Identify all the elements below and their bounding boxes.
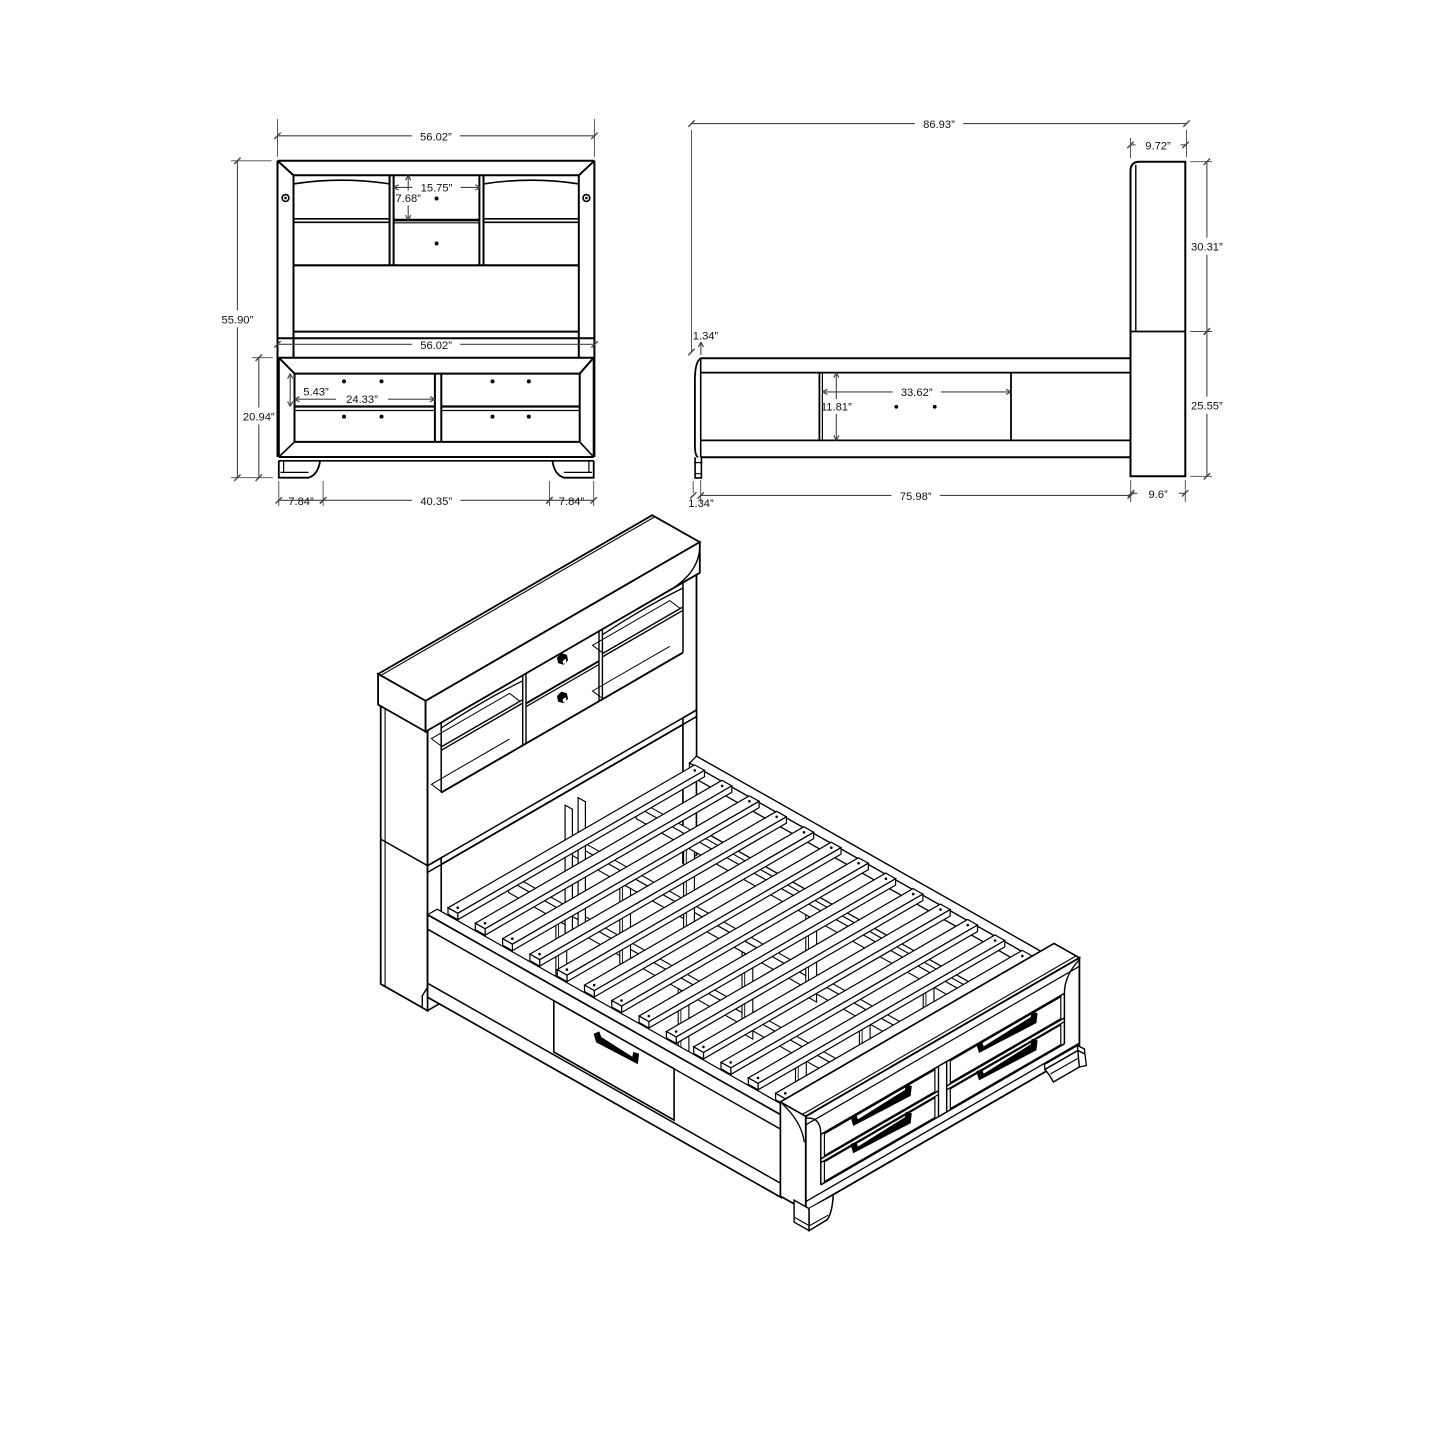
svg-text:24.33”: 24.33” xyxy=(346,394,378,406)
svg-text:20.94”: 20.94” xyxy=(243,412,275,424)
svg-text:7.68”: 7.68” xyxy=(395,193,421,205)
svg-text:9.72”: 9.72” xyxy=(1145,140,1171,152)
svg-text:15.75”: 15.75” xyxy=(421,182,453,194)
svg-text:55.90”: 55.90” xyxy=(222,314,254,326)
svg-text:86.93”: 86.93” xyxy=(923,119,955,131)
svg-text:40.35”: 40.35” xyxy=(420,496,452,508)
svg-text:33.62”: 33.62” xyxy=(901,387,933,399)
svg-text:7.84”: 7.84” xyxy=(559,496,585,508)
svg-text:30.31”: 30.31” xyxy=(1191,242,1223,254)
svg-text:25.55”: 25.55” xyxy=(1191,401,1223,413)
svg-text:1.34”: 1.34” xyxy=(693,331,719,343)
svg-text:11.81”: 11.81” xyxy=(821,402,852,414)
svg-text:7.84”: 7.84” xyxy=(288,496,314,508)
svg-text:9.6”: 9.6” xyxy=(1148,489,1168,501)
svg-text:5.43”: 5.43” xyxy=(303,387,329,399)
svg-text:56.02”: 56.02” xyxy=(420,340,452,352)
svg-text:75.98”: 75.98” xyxy=(900,491,932,503)
svg-text:56.02”: 56.02” xyxy=(420,131,452,143)
svg-text:1.34”: 1.34” xyxy=(688,498,714,510)
